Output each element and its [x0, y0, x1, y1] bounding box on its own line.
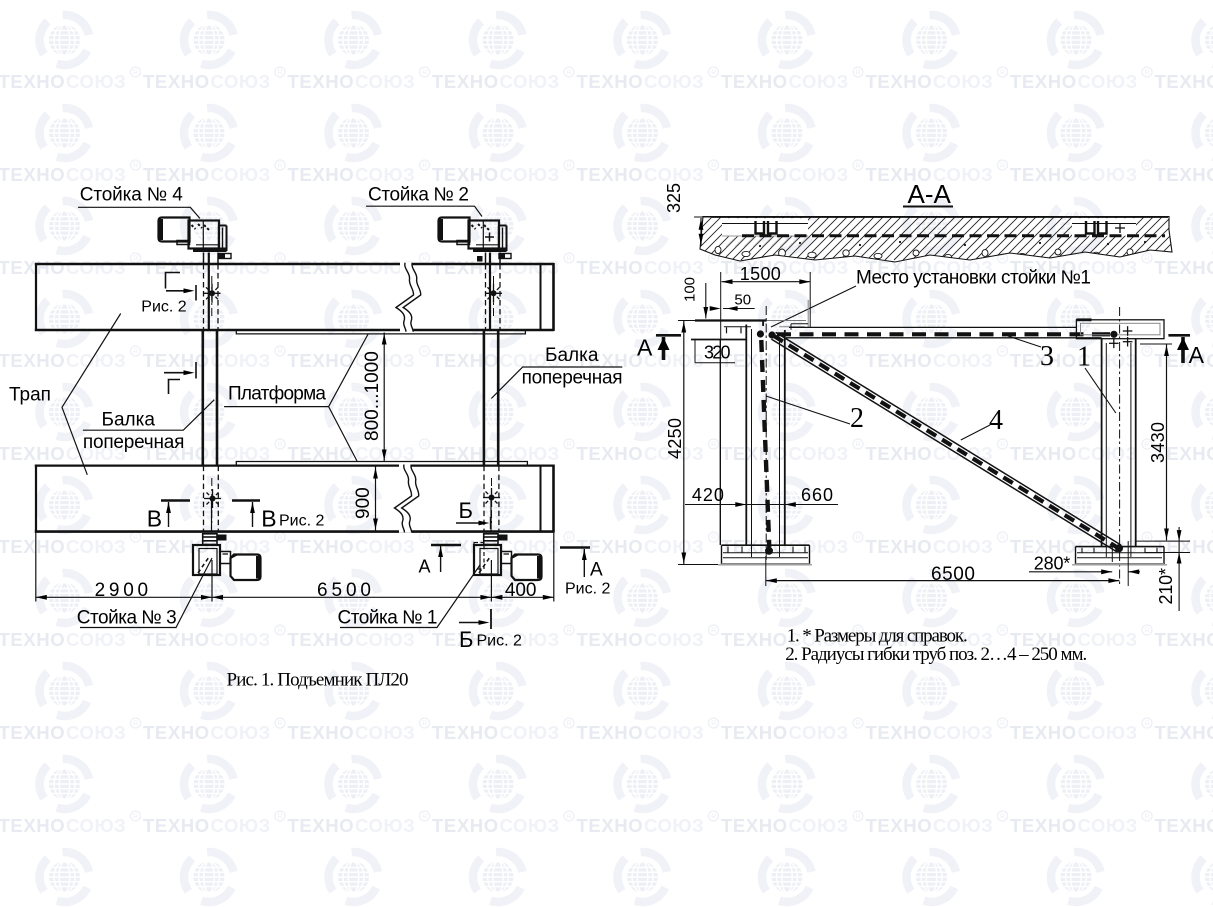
- svg-text:Место установки стойки №1: Место установки стойки №1: [856, 268, 1091, 289]
- svg-text:Рис. 2: Рис. 2: [477, 633, 523, 650]
- svg-text:Балка: Балка: [102, 410, 156, 431]
- svg-text:Балка: Балка: [545, 345, 599, 366]
- svg-text:А-А: А-А: [908, 179, 952, 209]
- svg-text:4: 4: [989, 405, 1003, 436]
- svg-text:900: 900: [353, 487, 374, 519]
- svg-text:800...1000: 800...1000: [362, 351, 383, 441]
- svg-text:В: В: [147, 506, 162, 532]
- svg-text:А: А: [590, 560, 603, 581]
- svg-text:Стойка № 1: Стойка № 1: [338, 608, 438, 629]
- svg-text:Б: Б: [459, 498, 473, 523]
- svg-text:4250: 4250: [665, 418, 685, 459]
- svg-text:В: В: [261, 506, 276, 532]
- svg-text:Стойка № 2: Стойка № 2: [368, 185, 469, 206]
- svg-text:Рис. 1. Подъемник ПЛ20: Рис. 1. Подъемник ПЛ20: [227, 670, 409, 691]
- svg-text:100: 100: [682, 277, 699, 302]
- svg-text:поперечная: поперечная: [522, 368, 623, 389]
- svg-text:3: 3: [1040, 341, 1054, 372]
- svg-text:320: 320: [704, 342, 731, 362]
- svg-text:325: 325: [664, 183, 684, 213]
- svg-text:420: 420: [692, 485, 724, 505]
- svg-text:Стойка № 4: Стойка № 4: [80, 185, 183, 206]
- svg-text:3430: 3430: [1148, 422, 1168, 463]
- svg-text:А: А: [637, 335, 653, 361]
- svg-text:А: А: [1189, 342, 1205, 368]
- svg-text:Платформа: Платформа: [228, 384, 326, 405]
- svg-text:6500: 6500: [931, 564, 975, 585]
- svg-text:Рис. 2: Рис. 2: [279, 513, 325, 530]
- svg-text:400: 400: [505, 580, 537, 601]
- svg-text:280*: 280*: [1034, 554, 1071, 574]
- svg-text:50: 50: [734, 292, 751, 309]
- svg-text:Рис. 2: Рис. 2: [565, 581, 611, 598]
- svg-text:660: 660: [801, 485, 833, 505]
- svg-text:А: А: [419, 557, 431, 577]
- svg-text:Рис. 2: Рис. 2: [141, 299, 187, 316]
- svg-text:Б: Б: [459, 627, 473, 652]
- svg-text:Стойка № 3: Стойка № 3: [77, 608, 177, 629]
- svg-text:2: 2: [850, 403, 864, 434]
- svg-text:2. Радиусы гибки труб поз. 2…4: 2. Радиусы гибки труб поз. 2…4 – 250 мм.: [785, 644, 1087, 665]
- svg-text:210*: 210*: [1156, 568, 1176, 605]
- svg-text:Трап: Трап: [9, 385, 51, 406]
- svg-text:поперечная: поперечная: [83, 432, 184, 453]
- svg-text:1500: 1500: [740, 264, 781, 284]
- svg-text:1: 1: [1077, 342, 1091, 373]
